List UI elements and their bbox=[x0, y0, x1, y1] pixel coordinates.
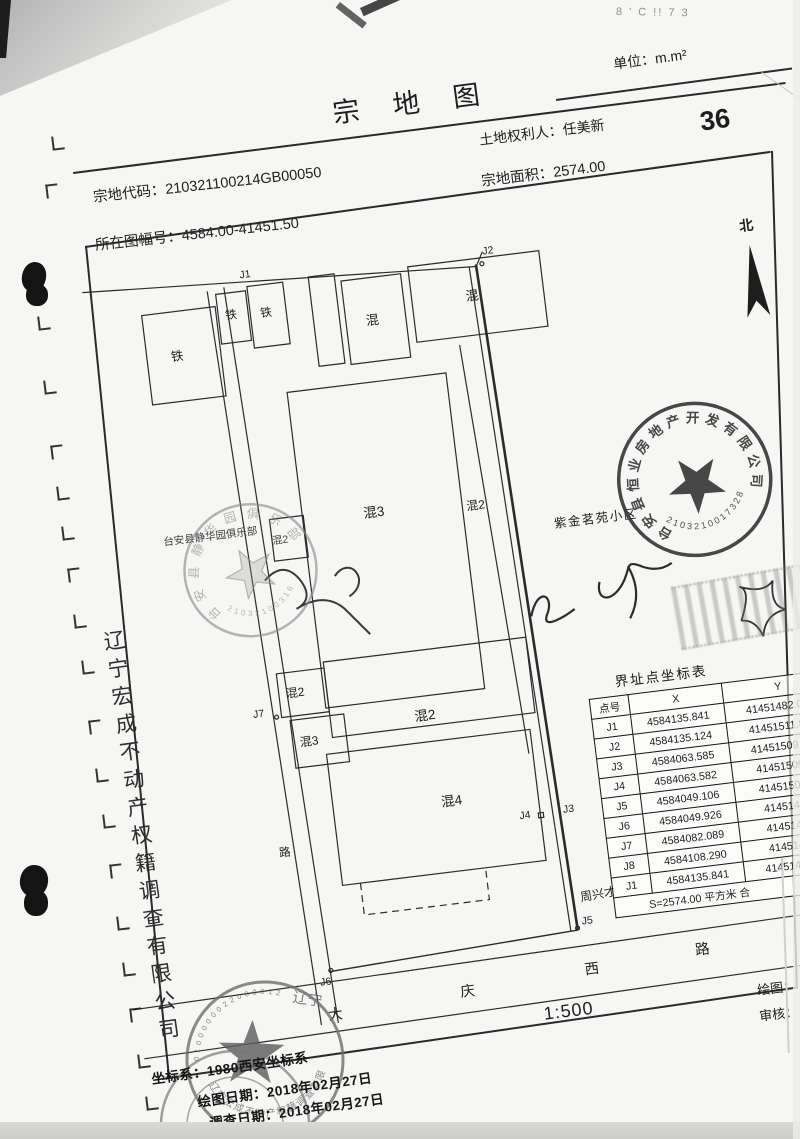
svg-text:21032100316: 21032100316 bbox=[223, 580, 302, 628]
boundary-point-label-j4: J4 bbox=[519, 809, 531, 822]
building-label-concrete2-small: 混2 bbox=[285, 683, 306, 702]
lane-line-right bbox=[224, 284, 338, 1025]
fold-mark bbox=[51, 135, 65, 150]
club-seal-star-icon bbox=[218, 539, 283, 603]
bottom-scan-edge bbox=[0, 1122, 800, 1139]
fold-mark-dark-2 bbox=[360, 0, 402, 16]
scanned-document: 单位：m.m² 宗 地 图 土地权利人：任美新 36 宗地代码：21032110… bbox=[0, 0, 800, 1139]
coordinate-table-block: 界址点坐标表 点号 X Y J14584135.84141451482.048J… bbox=[586, 644, 800, 918]
north-arrow-icon bbox=[739, 244, 771, 318]
boundary-top bbox=[82, 245, 476, 315]
boundary-point-label-j7: J7 bbox=[252, 708, 264, 721]
fold-mark bbox=[37, 315, 51, 330]
seal-star-icon bbox=[656, 443, 734, 521]
building-label-concrete-1: 混 bbox=[365, 309, 380, 329]
fold-mark bbox=[109, 863, 123, 878]
page-number: 36 bbox=[698, 103, 732, 138]
point-marker-j2 bbox=[480, 262, 484, 266]
fold-mark bbox=[81, 659, 95, 674]
fold-mark bbox=[67, 567, 81, 582]
boundary-right-inner bbox=[469, 265, 571, 933]
corner-shadow bbox=[0, 0, 232, 96]
punch-hole-blob bbox=[26, 284, 48, 306]
survey-seal-center-chars: 辽宁 bbox=[292, 989, 324, 1010]
punch-hole-blob bbox=[24, 890, 48, 916]
building-concrete4 bbox=[327, 729, 547, 885]
building-label-concrete4: 混4 bbox=[440, 788, 463, 810]
coordinate-table-body: J14584135.84141451482.048J24584135.12441… bbox=[592, 690, 800, 898]
fold-mark bbox=[102, 813, 116, 828]
right-scan-edge bbox=[793, 0, 800, 1139]
boundary-bottom bbox=[330, 930, 579, 971]
fold-mark bbox=[45, 183, 59, 198]
fold-mark bbox=[43, 379, 57, 394]
building-label-concrete3-large: 混3 bbox=[362, 500, 385, 522]
fold-mark bbox=[88, 719, 102, 734]
north-label: 北 bbox=[738, 214, 754, 236]
building-label-iron-1: 铁 bbox=[170, 345, 185, 365]
boundary-right-thick bbox=[476, 262, 578, 932]
fold-mark bbox=[56, 485, 70, 500]
parcel-map-frame: 北 J1 J2 J3 J4 J5 J6 J7 铁 铁 铁 混 混 混3 混2 混… bbox=[85, 164, 800, 1080]
fold-mark bbox=[73, 613, 87, 628]
boundary-point-label-j2: J2 bbox=[482, 244, 494, 257]
fold-mark bbox=[50, 444, 64, 459]
fold-mark bbox=[95, 767, 109, 782]
unit-label: 单位：m.m² bbox=[612, 44, 688, 73]
building-label-concrete2-strip: 混2 bbox=[465, 495, 486, 514]
fold-mark bbox=[61, 525, 75, 540]
building-label-iron-2: 铁 bbox=[224, 306, 237, 323]
fold-mark bbox=[137, 1053, 151, 1068]
lane-label: 路 bbox=[278, 844, 291, 861]
road-name-char-4: 路 bbox=[694, 937, 711, 960]
point-marker-j7 bbox=[274, 715, 278, 719]
building-sliver bbox=[308, 274, 345, 366]
fold-mark bbox=[116, 915, 130, 930]
fold-mark bbox=[145, 1095, 159, 1110]
fold-mark bbox=[122, 961, 136, 976]
building-label-concrete3-small: 混3 bbox=[299, 731, 320, 750]
club-seal-number: 21032100316 bbox=[223, 580, 302, 628]
building-label-concrete2-large: 混2 bbox=[413, 703, 436, 725]
road-name-char-3: 西 bbox=[583, 957, 600, 980]
coordinate-table: 点号 X Y J14584135.84141451482.048J2458413… bbox=[589, 669, 800, 918]
boundary-point-label-j5: J5 bbox=[581, 914, 593, 927]
boundary-point-label-j3: J3 bbox=[562, 803, 574, 816]
scan-artifact-text: 8 ' C !! 7 3 bbox=[616, 6, 690, 19]
parcel-code-label: 宗地代码：210321100214GB00050 bbox=[92, 161, 322, 207]
fold-mark bbox=[129, 1007, 143, 1022]
building-label-concrete-2: 混 bbox=[464, 284, 479, 304]
road-name-char-2: 庆 bbox=[459, 979, 476, 1002]
building-label-iron-3: 铁 bbox=[259, 304, 272, 321]
boundary-point-label-j1: J1 bbox=[239, 268, 251, 281]
